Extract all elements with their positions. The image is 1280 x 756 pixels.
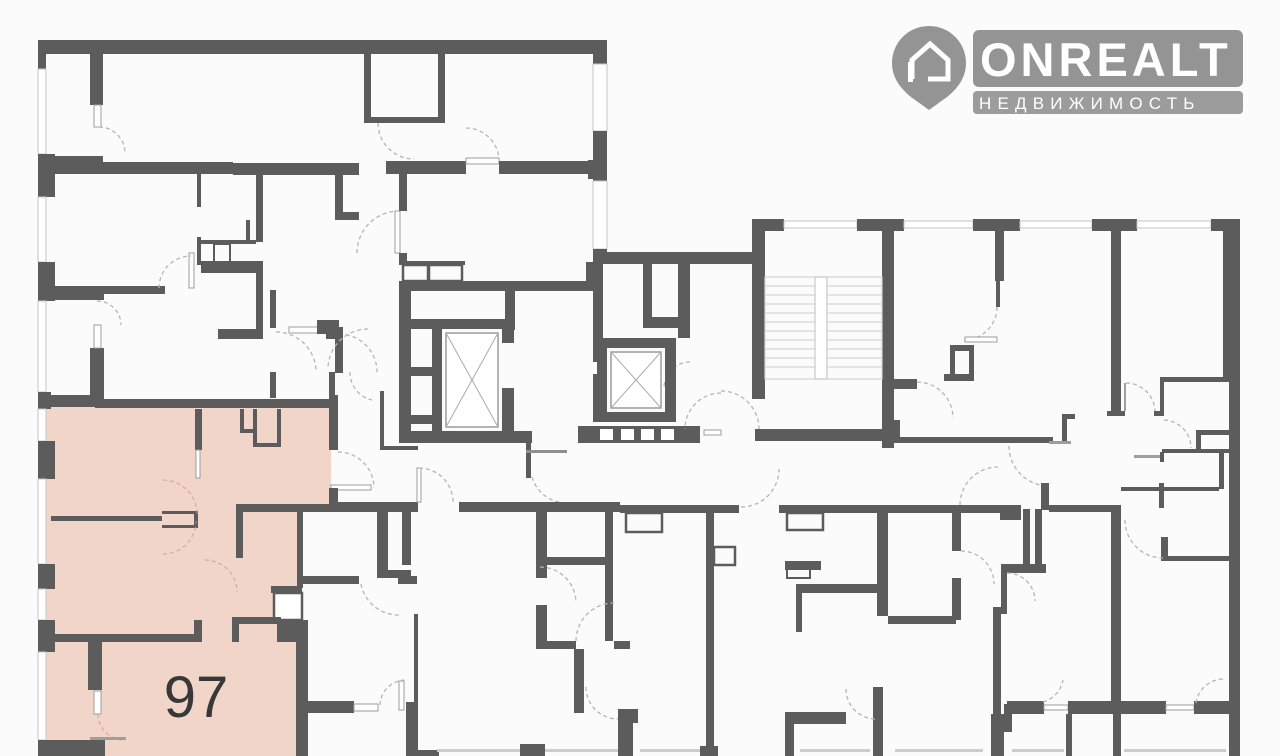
svg-text:97: 97 (164, 665, 229, 730)
svg-text:НЕДВИЖИМОСТЬ: НЕДВИЖИМОСТЬ (979, 94, 1201, 113)
svg-text:ONREALT: ONREALT (980, 33, 1232, 86)
